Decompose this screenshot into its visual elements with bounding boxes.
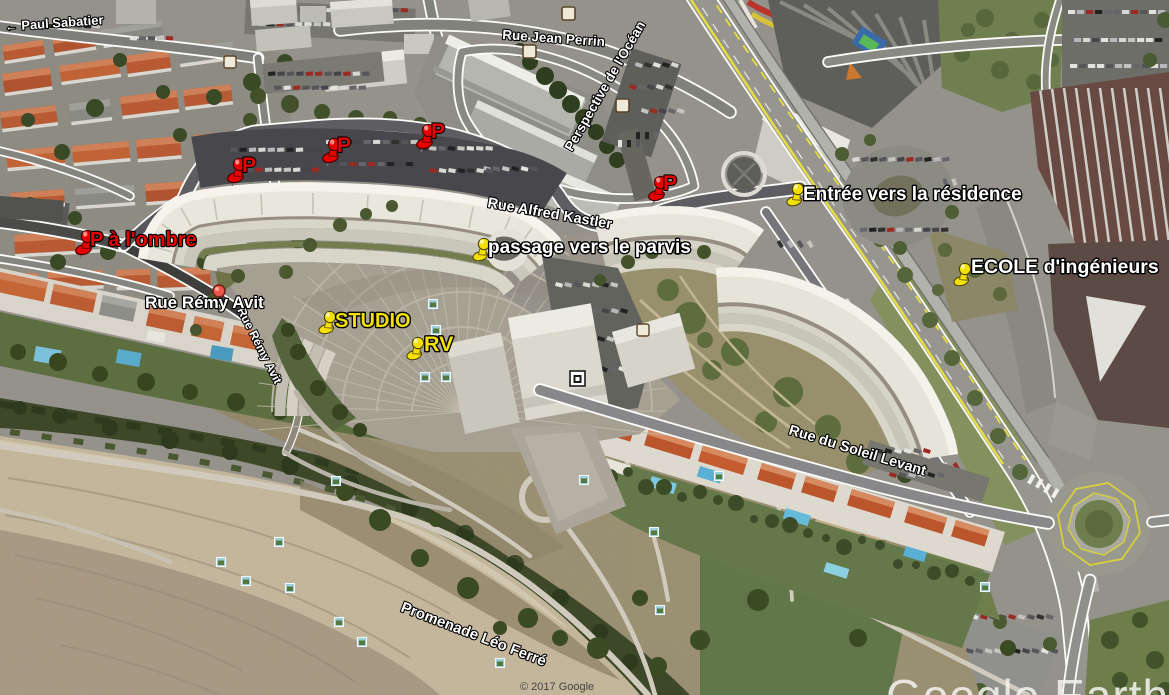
svg-text:Google Earth: Google Earth bbox=[886, 670, 1169, 695]
svg-text:P: P bbox=[431, 120, 445, 143]
svg-text:P: P bbox=[242, 154, 256, 177]
svg-text:P à l'ombre: P à l'ombre bbox=[90, 229, 197, 251]
svg-text:P: P bbox=[337, 134, 351, 157]
svg-text:RV: RV bbox=[424, 332, 454, 356]
svg-text:Rue Rémy Avit: Rue Rémy Avit bbox=[145, 293, 264, 312]
svg-text:ECOLE d'ingénieurs: ECOLE d'ingénieurs bbox=[971, 256, 1159, 278]
svg-text:passage vers le parvis: passage vers le parvis bbox=[488, 237, 691, 258]
svg-text:© 2017 Google: © 2017 Google bbox=[520, 681, 594, 693]
svg-text:Entrée vers la résidence: Entrée vers la résidence bbox=[803, 184, 1022, 205]
svg-text:STUDIO: STUDIO bbox=[335, 310, 411, 332]
svg-text:P: P bbox=[663, 172, 677, 195]
